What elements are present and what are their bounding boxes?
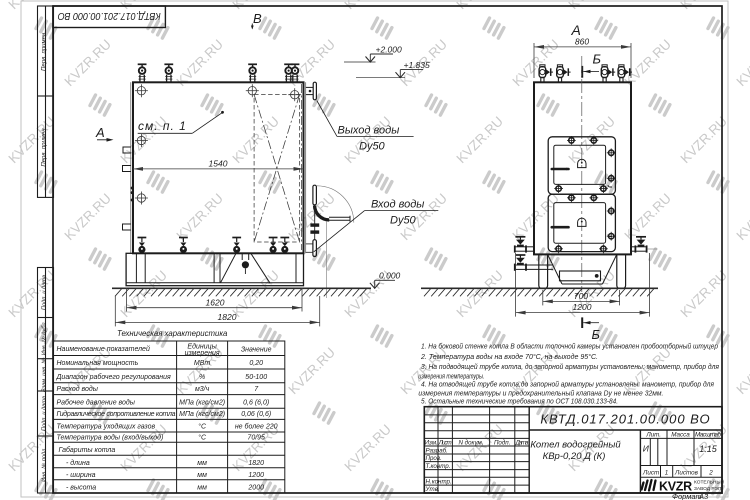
svg-text:Котел водогрейный: Котел водогрейный (530, 440, 621, 451)
svg-text:0.000: 0.000 (379, 270, 401, 280)
svg-text:не более 220: не более 220 (235, 423, 278, 431)
svg-text:Рабочее давление воды: Рабочее давление воды (57, 398, 136, 406)
svg-text:Dy50: Dy50 (359, 141, 386, 153)
svg-text:2000: 2000 (247, 484, 264, 491)
svg-text:Инв. № дубл.: Инв. № дубл. (41, 321, 47, 355)
svg-text:4. На отводящей трубе котла,д: 4. На отводящей трубе котла,до запорной … (421, 379, 714, 388)
svg-text:Пров.: Пров. (426, 455, 442, 462)
svg-text:ЗАВОД РЭП: ЗАВОД РЭП (694, 486, 722, 492)
svg-text:Гидравлическое сопротивление к: Гидравлическое сопротивление котла (57, 410, 176, 418)
svg-text:Листов: Листов (674, 470, 699, 477)
svg-text:Dy50: Dy50 (390, 215, 417, 227)
svg-text:А: А (95, 125, 105, 140)
svg-text:Масштаб: Масштаб (695, 430, 721, 438)
svg-text:Вход воды: Вход воды (371, 199, 424, 211)
svg-text:Б: Б (593, 52, 602, 67)
svg-text:МВт: МВт (194, 360, 211, 367)
svg-text:Перв. примен.: Перв. примен. (41, 127, 47, 167)
svg-text:И: И (643, 444, 650, 454)
svg-text:Техническая характеристика: Техническая характеристика (117, 329, 228, 338)
svg-text:Диапазон рабочего регулировани: Диапазон рабочего регулирования (56, 373, 172, 381)
svg-text:мм: мм (197, 484, 207, 491)
svg-text:Утв.: Утв. (425, 486, 440, 493)
svg-text:1:15: 1:15 (699, 444, 718, 454)
svg-text:Подп. и дата: Подп. и дата (41, 396, 47, 431)
svg-text:Лист: Лист (438, 439, 452, 446)
svg-text:1200: 1200 (573, 302, 592, 312)
svg-text:Номинальная мощность: Номинальная мощность (57, 360, 139, 367)
svg-text:Наименование показателей: Наименование показателей (57, 345, 150, 353)
svg-text:1820: 1820 (218, 312, 237, 322)
svg-text:860: 860 (575, 36, 589, 46)
svg-text:%: % (199, 374, 205, 381)
svg-text:2. Температура воды на входе: 2. Температура воды на входе 70°С, на вы… (420, 352, 598, 361)
svg-text:Габариты котла: Габариты котла (59, 446, 116, 454)
svg-text:Масса: Масса (671, 431, 690, 438)
svg-text:Выход воды: Выход воды (338, 125, 400, 137)
svg-text:Изм.: Изм. (425, 439, 438, 446)
svg-text:Н.контр.: Н.контр. (426, 478, 452, 485)
svg-text:0,20: 0,20 (249, 360, 263, 367)
svg-text:КВТД.017.201.00.000 ВО: КВТД.017.201.00.000 ВО (540, 412, 710, 427)
svg-text:70/95: 70/95 (247, 435, 265, 442)
svg-text:Б: Б (592, 327, 601, 342)
svg-text:Дата: Дата (515, 439, 530, 446)
svg-text:Температура воды (вход/выход): Температура воды (вход/выход) (57, 434, 164, 442)
svg-text:Разраб.: Разраб. (426, 447, 448, 454)
svg-text:- ширина: - ширина (66, 472, 96, 479)
svg-text:- длина: - длина (66, 459, 90, 467)
svg-text:Лист: Лист (642, 470, 659, 477)
svg-text:50-100: 50-100 (245, 374, 267, 381)
svg-text:+1.835: +1.835 (404, 60, 431, 70)
svg-text:- высота: - высота (66, 484, 96, 491)
svg-text:3. На подводящей трубе котла,: 3. На подводящей трубе котла, до запорно… (421, 362, 719, 371)
svg-text:мм: мм (197, 460, 207, 467)
svg-text:0,06 (0,6): 0,06 (0,6) (241, 411, 271, 418)
svg-text:°С: °С (198, 434, 207, 442)
svg-text:+2.000: +2.000 (376, 44, 403, 54)
svg-text:700: 700 (574, 291, 588, 301)
svg-text:измерения: измерения (185, 350, 220, 357)
svg-text:Инв. № подл.: Инв. № подл. (41, 447, 47, 482)
svg-text:Подп.: Подп. (494, 439, 510, 446)
svg-text:Формат: Формат (672, 492, 702, 500)
svg-text:Перв. примен.: Перв. примен. (41, 31, 47, 71)
svg-text:Значение: Значение (241, 346, 272, 353)
svg-text:В: В (253, 11, 262, 26)
svg-text:1200: 1200 (248, 472, 264, 479)
svg-text:2: 2 (708, 470, 713, 477)
svg-text:5. Остальные технические треб: 5. Остальные технические требования по О… (421, 396, 618, 405)
svg-text:1540: 1540 (209, 158, 228, 168)
svg-text:N докум.: N докум. (458, 439, 483, 446)
svg-text:Т.контр.: Т.контр. (426, 463, 451, 470)
svg-text:КВТД.017.201.00.000 ВО: КВТД.017.201.00.000 ВО (58, 10, 161, 22)
svg-text:м3/ч: м3/ч (195, 386, 210, 393)
svg-text:Расход воды: Расход воды (57, 385, 99, 393)
svg-text:мм: мм (197, 472, 207, 479)
svg-text:МПа (кгс/см2): МПа (кгс/см2) (179, 399, 225, 406)
svg-text:°С: °С (198, 423, 207, 431)
svg-text:см. п. 1: см. п. 1 (138, 119, 187, 133)
svg-text:Лит.: Лит. (645, 431, 661, 438)
svg-text:МПа (кгс/см2): МПа (кгс/см2) (179, 411, 225, 418)
svg-text:1620: 1620 (206, 297, 225, 307)
svg-text:Взам. инв. №: Взам. инв. № (41, 357, 47, 392)
svg-text:КВр-0,20 Д (К): КВр-0,20 Д (К) (543, 451, 606, 462)
svg-text:А3: А3 (698, 492, 709, 500)
svg-text:0,6 (6,0): 0,6 (6,0) (243, 399, 269, 406)
svg-text:1: 1 (665, 470, 669, 477)
svg-text:Подп. и дата: Подп. и дата (41, 275, 47, 310)
svg-text:1820: 1820 (248, 460, 264, 467)
svg-text:Температура уходящих газов: Температура уходящих газов (57, 423, 156, 431)
svg-text:1. На боковой стенке котла В: 1. На боковой стенке котла В области топ… (421, 342, 718, 351)
